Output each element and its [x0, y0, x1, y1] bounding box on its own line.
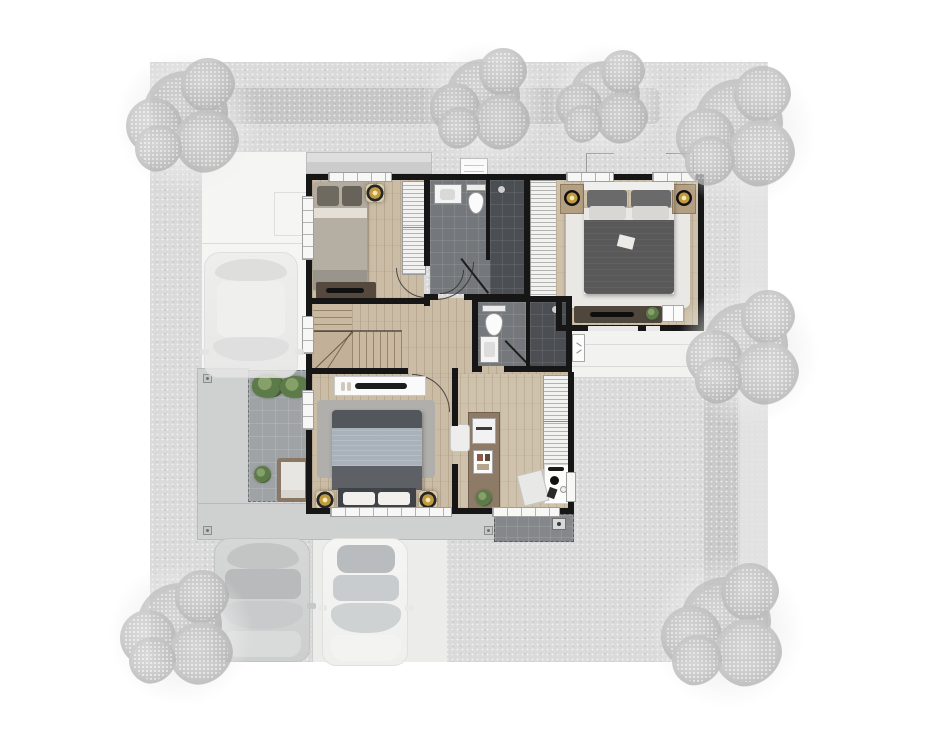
wall-bathroom1-south-b — [424, 294, 438, 300]
car-roof — [217, 281, 285, 337]
window-bottom-bedroom3 — [330, 507, 452, 517]
window-top-bedroom2 — [328, 172, 392, 182]
driveway-line — [202, 243, 310, 244]
tree — [122, 572, 240, 690]
tree — [688, 292, 806, 410]
window-left-stairs — [302, 316, 314, 354]
wall-master-stub — [556, 298, 562, 331]
wall-bathroom2-south-a — [472, 366, 482, 372]
bathroom1-shower-floor — [490, 180, 524, 294]
upper-ledge — [306, 152, 432, 174]
window-top-master-1 — [566, 172, 614, 182]
bed-single — [313, 182, 367, 290]
tree — [128, 60, 246, 178]
stair-lower-flight — [352, 332, 402, 372]
plant-study — [476, 490, 492, 506]
bathroom-vanity — [434, 184, 462, 204]
wall-hall-south — [306, 368, 408, 374]
toilet — [466, 184, 486, 216]
wall-bathroom2-west — [472, 296, 478, 372]
wall-bathroom2-north — [472, 296, 572, 302]
wall-bathroom2-south-b — [504, 366, 572, 372]
terrace-armchair — [277, 458, 309, 502]
wall-bedroom2-east-a — [424, 174, 430, 266]
table-lamp — [564, 190, 580, 206]
table-lamp — [676, 190, 692, 206]
wall-bedroom3-east-a — [452, 368, 458, 426]
wall-right-mid — [566, 296, 572, 372]
car-rear-window — [215, 259, 287, 281]
car-mirror — [295, 349, 304, 355]
tree — [664, 566, 790, 692]
wall-bottom-b — [452, 508, 492, 514]
plant-master — [646, 307, 659, 320]
bed-double — [332, 410, 422, 510]
armchair-seat — [281, 490, 305, 498]
tv-console — [334, 376, 426, 396]
tree — [432, 50, 536, 154]
tree — [678, 68, 802, 192]
car-parking-right — [322, 538, 408, 666]
shower-head-icon — [498, 186, 505, 193]
car-carport-upper — [204, 252, 298, 378]
printer — [472, 418, 496, 444]
slab-bolt — [484, 526, 493, 535]
floor-plan-canvas — [0, 0, 935, 745]
ceiling-spot-light — [366, 184, 384, 202]
slab-bolt — [203, 526, 212, 535]
wall-bottom-c — [558, 508, 574, 514]
armchair-cushion — [281, 462, 305, 490]
window-master-south-2 — [646, 326, 660, 331]
wardrobe-study — [543, 375, 569, 469]
desk-chair-white — [450, 424, 470, 452]
car-windshield — [213, 337, 289, 361]
wall-study-east-a — [568, 372, 574, 472]
car-mirror — [200, 349, 209, 355]
tree — [558, 52, 654, 148]
stair-upper-flight — [313, 302, 352, 332]
dresser — [316, 282, 376, 299]
bed-master — [584, 182, 674, 294]
wall-bathroom1-partition — [486, 176, 490, 260]
window-master-south-1 — [588, 326, 638, 331]
window-left-bedroom2 — [302, 196, 314, 260]
window-bottom-study — [492, 507, 560, 517]
bathroom-vanity — [480, 336, 499, 363]
parking-divider — [312, 537, 313, 662]
window-left-bedroom3 — [302, 390, 314, 430]
wall-bathroom1-east — [524, 174, 530, 300]
staircase — [313, 302, 402, 372]
wall-bedroom2-south — [306, 298, 430, 304]
wardrobe — [402, 181, 426, 275]
terrace-potted-plant — [254, 466, 271, 483]
wall-bedroom3-east-b — [452, 464, 458, 512]
walk-in-closet — [530, 180, 558, 300]
awning-access-door — [572, 334, 585, 362]
wall-bottom-a — [306, 508, 332, 514]
desk-shelf — [473, 450, 493, 474]
wall-bathroom2-partition — [526, 302, 530, 366]
toilet — [482, 305, 506, 337]
balcony-door — [566, 472, 576, 502]
balcony-drain — [552, 518, 566, 530]
